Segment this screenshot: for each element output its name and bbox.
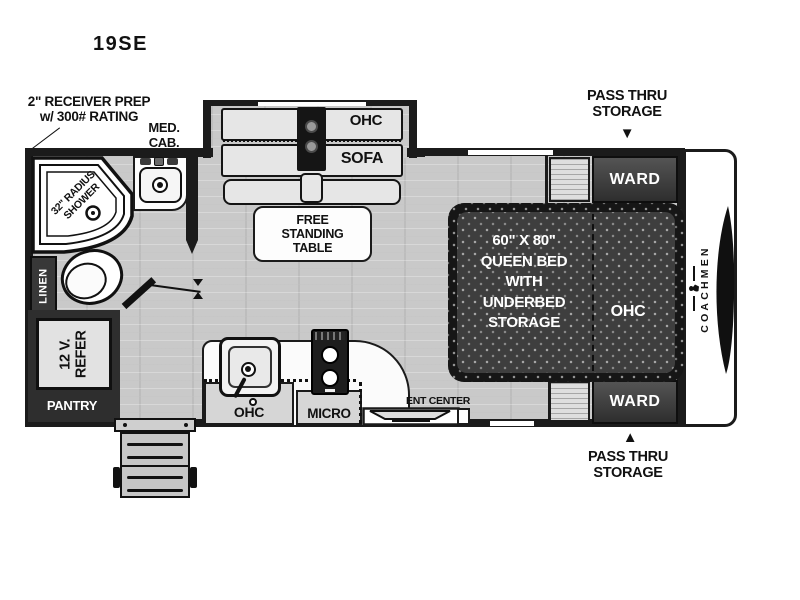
pass-thru-top-callout: PASS THRU STORAGE [573, 88, 681, 120]
bed-ohc-label: OHC [598, 303, 658, 321]
brand-rule-right [693, 267, 695, 282]
faucet-spout-icon [154, 157, 164, 166]
bedroom-dresser-top [549, 157, 590, 202]
wardrobe-top: WARD [592, 156, 678, 203]
refer: 12 V. REFER [36, 318, 112, 390]
pass-thru-top-line1: PASS THRU [573, 88, 681, 104]
free-standing-table: FREE STANDING TABLE [253, 206, 372, 262]
toilet-icon [56, 246, 128, 310]
microwave-label: MICRO [307, 406, 351, 421]
bed-line4: UNDERBED [458, 293, 590, 314]
door-latch-icon [193, 279, 203, 286]
wardrobe-bottom: WARD [592, 380, 678, 424]
sofa-console-cushion [300, 173, 323, 203]
window-top-wall [468, 150, 553, 155]
bedroom-dresser-bottom [549, 381, 590, 422]
step-bolt-icon [123, 423, 127, 427]
pantry-label: PANTRY [36, 399, 108, 414]
refer-label: 12 V. REFER [58, 330, 90, 378]
window-bottom-wall [490, 421, 534, 426]
tv-stand-end-cap [457, 408, 470, 425]
cupholder-icon [305, 120, 318, 133]
sofa-ohc-label: OHC [336, 113, 396, 130]
sofa-center-console [297, 107, 326, 171]
bedroom-divider-top [545, 156, 548, 206]
burner-icon [321, 346, 339, 364]
sofa-label: SOFA [330, 150, 394, 168]
step-divider [121, 465, 189, 467]
coachmen-logo-icon [689, 285, 699, 294]
kitchen-sink-drain-dot [245, 366, 251, 372]
linen-label: LINEN [37, 268, 49, 304]
floorplan-page: 19SE 2" RECEIVER PREP w/ 300# RATING MED… [0, 0, 800, 600]
step-bolt-icon [184, 423, 188, 427]
kitchen-faucet-handle [249, 398, 257, 406]
step-tread [127, 443, 183, 446]
refer-line1: 12 V. [58, 330, 74, 378]
cupholder-icon [305, 140, 318, 153]
step-tread [127, 489, 183, 492]
bed-line5: STORAGE [458, 313, 590, 334]
ent-center-label: ENT CENTER [406, 396, 468, 408]
table-line3: TABLE [293, 241, 332, 255]
wardrobe-top-label: WARD [610, 171, 661, 189]
linen-cabinet: LINEN [30, 256, 57, 316]
bath-wall-tip [186, 240, 198, 254]
bed-line2: QUEEN BED [458, 252, 590, 273]
bath-wall [186, 156, 198, 240]
receiver-prep-callout: 2" RECEIVER PREP w/ 300# RATING [16, 94, 162, 124]
pass-thru-bottom-line1: PASS THRU [574, 449, 682, 465]
step-tread [127, 476, 183, 479]
bed-line1: 60" X 80" [458, 231, 590, 252]
step-handle-icon [190, 467, 197, 488]
burner-icon [321, 369, 339, 387]
tv-stand-icon [362, 407, 460, 426]
table-line1: FREE [296, 213, 328, 227]
brand-rule-left [693, 297, 695, 312]
pass-thru-bottom-arrow-icon: ▲ [615, 430, 645, 447]
wardrobe-bottom-label: WARD [610, 393, 661, 411]
bed-line3: WITH [458, 272, 590, 293]
brand-logo-row [689, 267, 699, 312]
brand-name: COACHMEN [700, 245, 712, 332]
step-tread [127, 456, 183, 459]
med-cab-callout: MED. CAB. [140, 121, 188, 150]
faucet-knob-icon [167, 158, 178, 165]
floorplan-title: 19SE [93, 33, 148, 55]
faucet-knob-icon [140, 158, 151, 165]
cooktop-vent [315, 332, 345, 340]
pass-thru-bottom-line2: STORAGE [574, 465, 682, 481]
pass-thru-top-line2: STORAGE [573, 104, 681, 120]
cooktop-knob-strip [325, 389, 335, 392]
pass-thru-top-arrow-icon: ▼ [612, 126, 642, 143]
med-cab-line1: MED. [140, 121, 188, 136]
refer-line2: REFER [74, 330, 90, 378]
bed-label: 60" X 80" QUEEN BED WITH UNDERBED STORAG… [458, 231, 590, 334]
bed-section-divider [592, 214, 594, 371]
microwave-cabinet: MICRO [296, 390, 362, 425]
door-latch-icon [193, 292, 203, 299]
pass-thru-bottom-callout: PASS THRU STORAGE [574, 449, 682, 481]
kitchen-ohc-label: OHC [234, 405, 264, 421]
receiver-prep-line1: 2" RECEIVER PREP [16, 94, 162, 109]
slideout-stub-right [407, 148, 425, 157]
brand-block: COACHMEN [689, 239, 715, 339]
table-line2: STANDING [282, 227, 344, 241]
step-handle-icon [113, 467, 120, 488]
receiver-prep-pointer-line [31, 127, 60, 149]
bath-sink-drain-dot [157, 182, 163, 188]
